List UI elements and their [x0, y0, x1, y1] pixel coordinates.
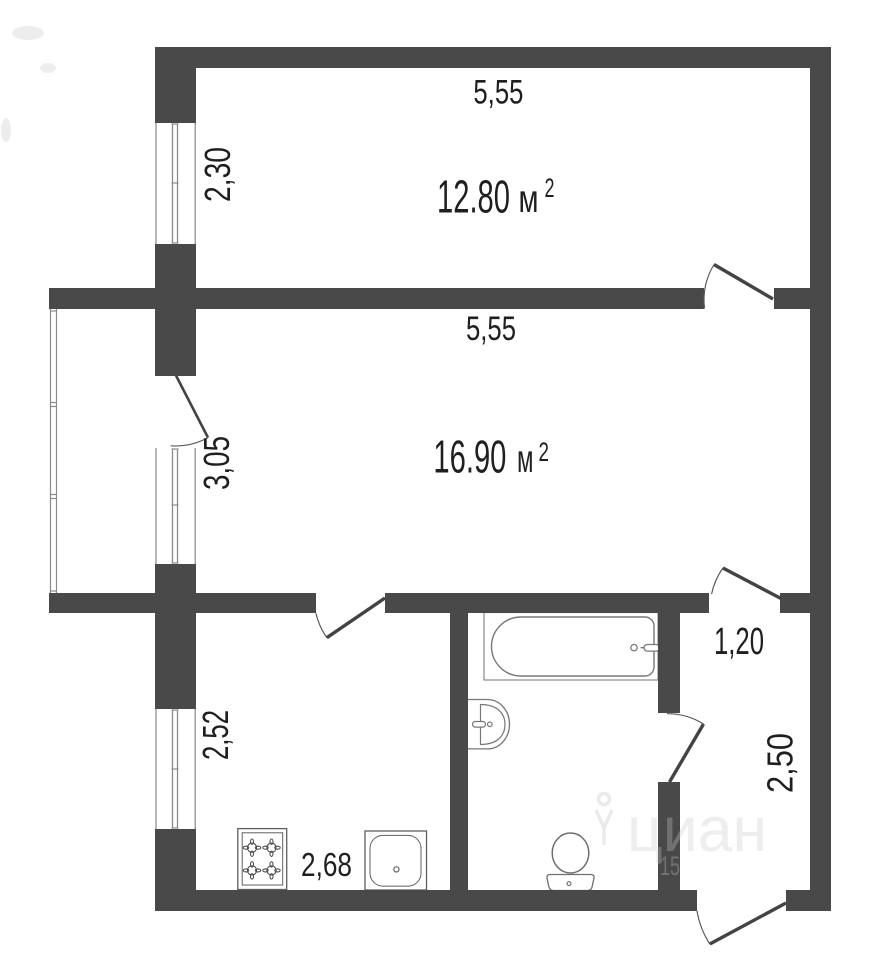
svg-text:12.80: 12.80: [437, 171, 510, 223]
svg-text:16.90: 16.90: [433, 431, 506, 483]
svg-text:м: м: [519, 178, 539, 221]
svg-text:2,30: 2,30: [197, 147, 238, 202]
svg-text:2,68: 2,68: [301, 846, 352, 883]
svg-text:2,50: 2,50: [760, 733, 801, 793]
svg-text:5,55: 5,55: [473, 74, 523, 112]
svg-text:циан: циан: [627, 795, 767, 865]
svg-text:15: 15: [660, 851, 680, 881]
svg-text:3,05: 3,05: [196, 436, 237, 490]
svg-text:5,55: 5,55: [466, 310, 516, 348]
svg-text:1,20: 1,20: [714, 621, 764, 663]
svg-text:2: 2: [539, 437, 550, 467]
svg-text:м: м: [517, 438, 534, 481]
svg-text:2: 2: [545, 173, 555, 203]
svg-text:2,52: 2,52: [195, 710, 236, 760]
